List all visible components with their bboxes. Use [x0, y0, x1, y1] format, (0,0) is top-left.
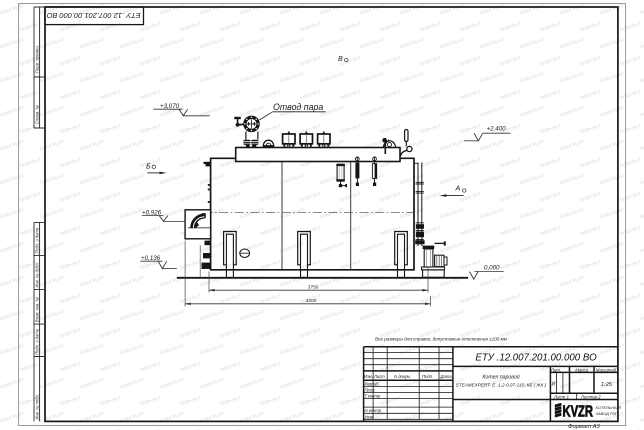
svg-text:Взам. инв. №: Взам. инв. № — [34, 296, 39, 322]
svg-text:+2,400: +2,400 — [487, 126, 507, 133]
svg-text:Котел паровой: Котел паровой — [482, 374, 519, 381]
svg-text:KVZR: KVZR — [563, 403, 594, 420]
svg-text:Лист 1: Лист 1 — [553, 394, 570, 399]
svg-text:В: В — [338, 55, 343, 63]
svg-text:Н.контр: Н.контр — [365, 408, 382, 413]
svg-text:Дата: Дата — [440, 374, 453, 379]
svg-text:Утв.: Утв. — [365, 414, 375, 419]
svg-text:STEAMEXPERT- Е -1,2-0,07-115-: STEAMEXPERT- Е -1,2-0,07-115- КБ ( ЖК ) — [456, 383, 547, 388]
svg-text:Б: Б — [146, 163, 151, 171]
svg-text:ЕТУ .12.007.201.00.000 ВО: ЕТУ .12.007.201.00.000 ВО — [47, 11, 141, 20]
svg-text:3750: 3750 — [308, 285, 319, 291]
svg-text:Лист: Лист — [373, 374, 385, 379]
svg-text:Отвод пара: Отвод пара — [273, 102, 323, 112]
svg-text:Подп. и дата: Подп. и дата — [34, 328, 39, 354]
svg-text:0,000: 0,000 — [484, 265, 500, 272]
svg-text:Инв. № дубл.: Инв. № дубл. — [34, 262, 39, 287]
svg-text:Подп.: Подп. — [422, 374, 433, 379]
svg-text:Справ. №: Справ. № — [34, 105, 39, 124]
svg-text:Перв. примен.: Перв. примен. — [34, 45, 39, 73]
svg-text:Т.контр: Т.контр — [365, 394, 381, 399]
svg-text:Инв. № подл.: Инв. № подл. — [34, 394, 39, 419]
svg-text:КОТЕЛЬНЫЙ: КОТЕЛЬНЫЙ — [596, 405, 621, 410]
svg-text:Масса: Масса — [575, 367, 589, 372]
svg-text:ЗАВОД РЗП: ЗАВОД РЗП — [596, 411, 619, 416]
svg-text:1:25: 1:25 — [601, 382, 613, 388]
svg-text:Разраб.: Разраб. — [365, 381, 380, 386]
svg-text:Изм.: Изм. — [364, 374, 373, 379]
svg-text:Пров.: Пров. — [365, 387, 376, 392]
svg-text:ЕТУ .12.007.201.00.000 ВО: ЕТУ .12.007.201.00.000 ВО — [475, 353, 597, 364]
svg-text:Лит.: Лит. — [550, 367, 561, 372]
svg-text:Формат А3: Формат А3 — [568, 424, 600, 430]
svg-text:И: И — [551, 382, 555, 388]
svg-text:Листов 2: Листов 2 — [580, 394, 601, 399]
svg-text:А: А — [455, 185, 461, 193]
svg-text:4200: 4200 — [306, 298, 317, 304]
svg-text:Масштаб: Масштаб — [596, 367, 617, 372]
svg-text:N докум.: N докум. — [394, 374, 411, 379]
svg-text:Подп. и дата: Подп. и дата — [34, 227, 39, 253]
svg-text:Все размеры для справок, допус: Все размеры для справок, допустимые откл… — [375, 337, 508, 342]
